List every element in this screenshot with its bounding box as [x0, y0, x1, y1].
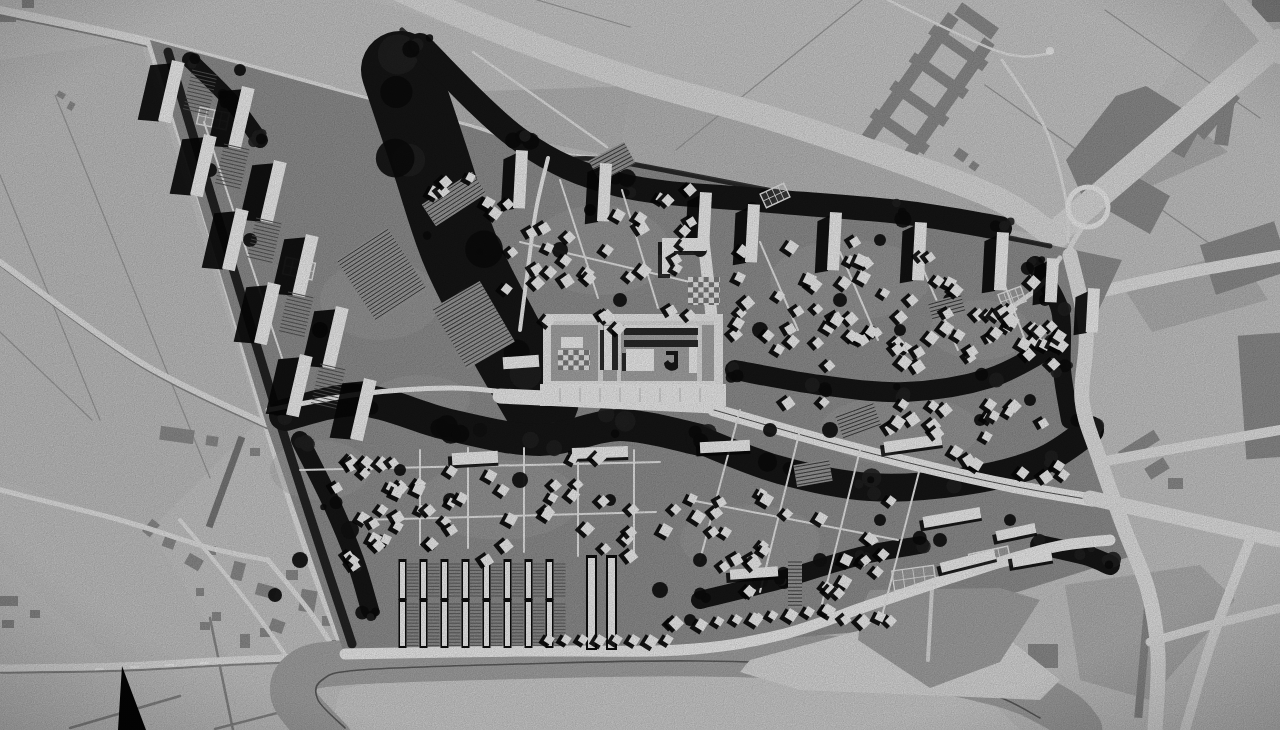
photo-stage [0, 0, 1280, 730]
aerial-model-photograph [0, 0, 1280, 730]
photo-effects [0, 0, 1280, 730]
